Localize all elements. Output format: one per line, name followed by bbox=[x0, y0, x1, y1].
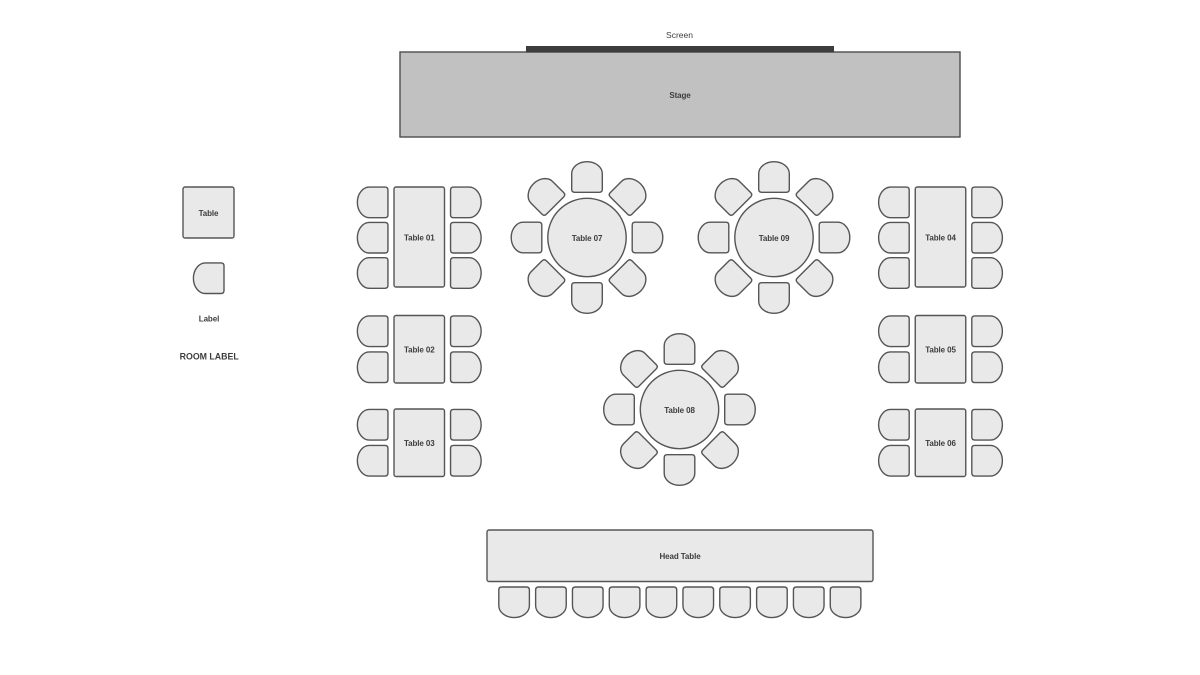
svg-text:Table 03: Table 03 bbox=[404, 439, 435, 448]
svg-text:Table: Table bbox=[199, 209, 219, 218]
svg-text:Table 02: Table 02 bbox=[404, 346, 435, 355]
svg-text:Table 07: Table 07 bbox=[572, 234, 603, 243]
svg-text:Head Table: Head Table bbox=[659, 552, 701, 561]
svg-text:ROOM LABEL: ROOM LABEL bbox=[180, 351, 240, 361]
svg-text:Table 08: Table 08 bbox=[664, 406, 695, 415]
svg-text:Screen: Screen bbox=[666, 30, 693, 40]
svg-text:Table 05: Table 05 bbox=[925, 346, 956, 355]
svg-text:Table 06: Table 06 bbox=[925, 439, 956, 448]
svg-text:Table 09: Table 09 bbox=[759, 234, 790, 243]
svg-text:Table 04: Table 04 bbox=[925, 233, 956, 242]
svg-text:Stage: Stage bbox=[669, 91, 691, 100]
svg-text:Table 01: Table 01 bbox=[404, 233, 435, 242]
svg-text:Label: Label bbox=[199, 315, 219, 324]
